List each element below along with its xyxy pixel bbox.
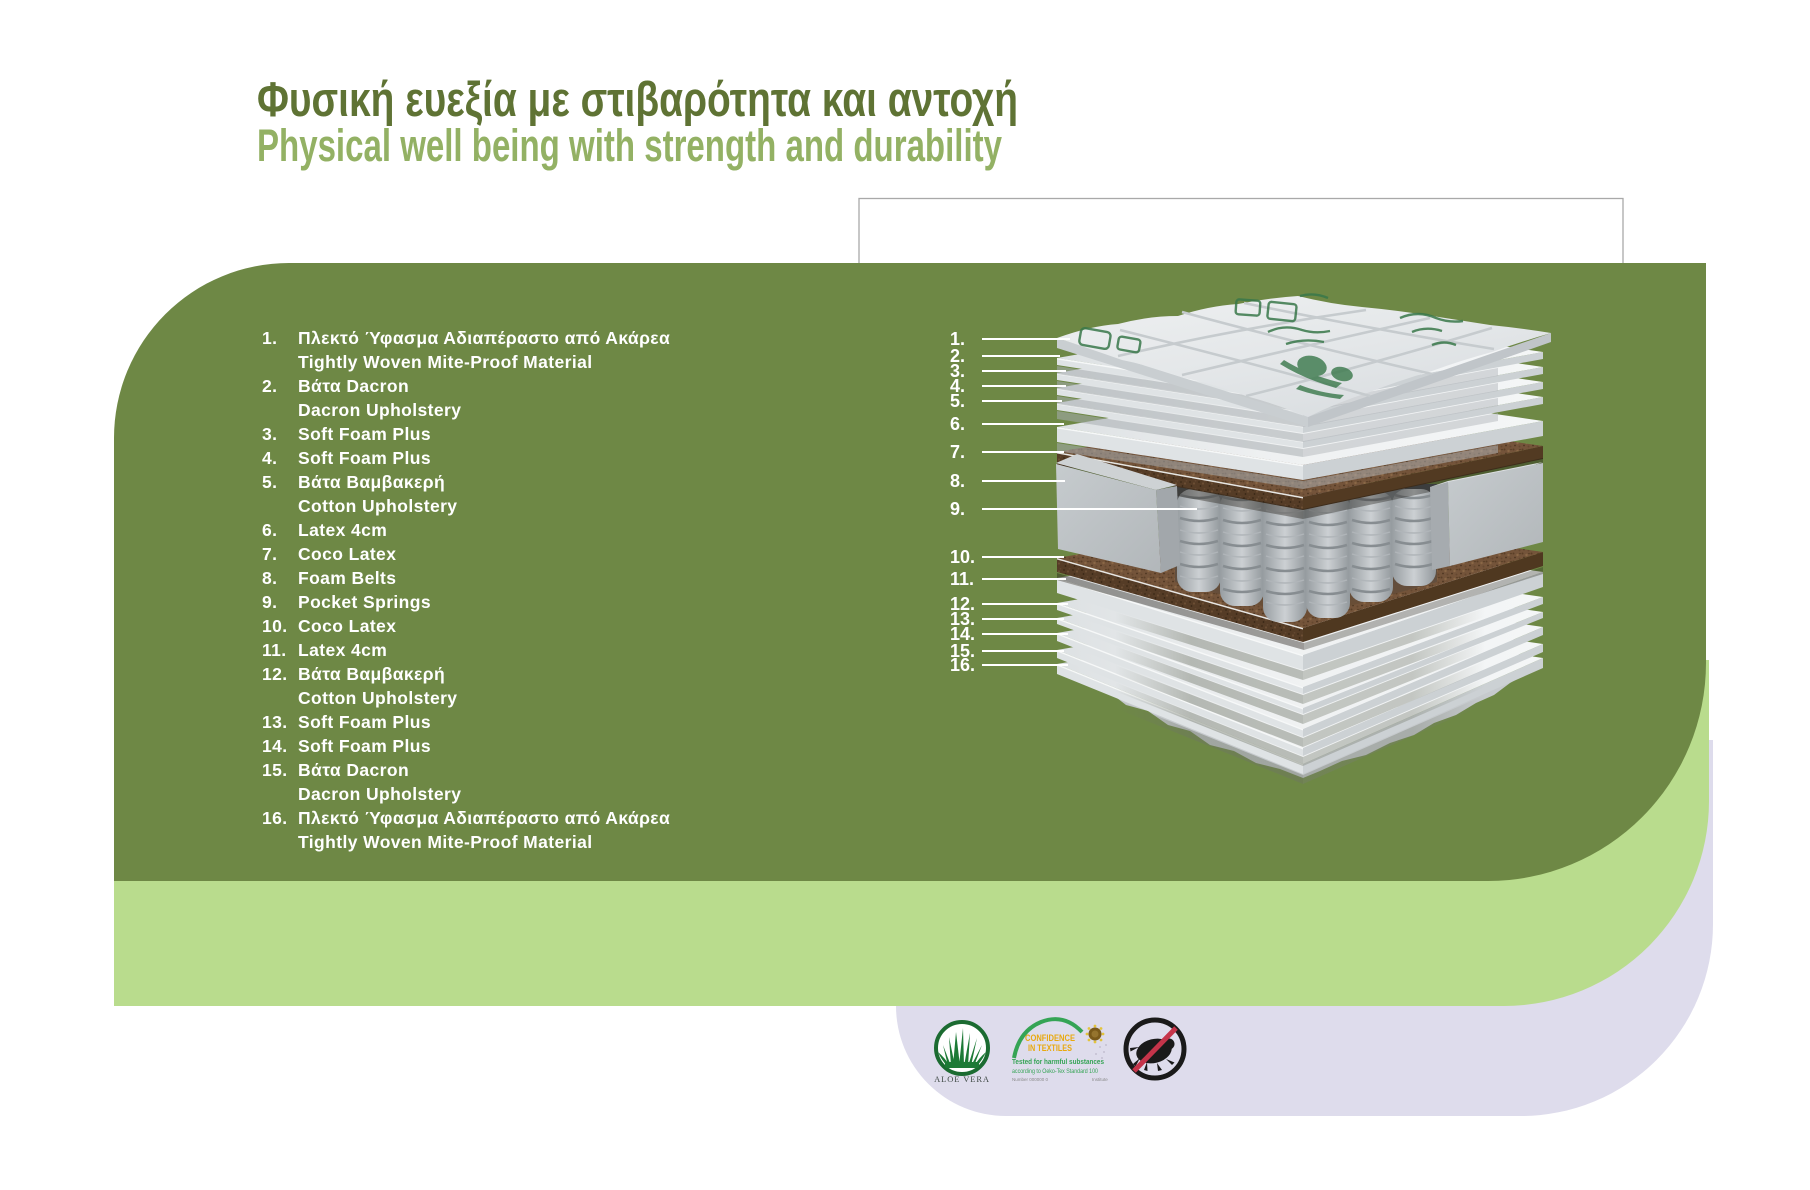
svg-text:11.: 11. bbox=[950, 569, 974, 589]
svg-text:Cotton Upholstery: Cotton Upholstery bbox=[298, 496, 457, 516]
svg-text:Soft Foam Plus: Soft Foam Plus bbox=[298, 448, 431, 468]
svg-text:Latex 4cm: Latex 4cm bbox=[298, 640, 387, 660]
svg-text:Foam Belts: Foam Belts bbox=[298, 568, 396, 588]
svg-text:Φυσική ευεξία με στιβαρότητα κ: Φυσική ευεξία με στιβαρότητα και αντοχή bbox=[257, 73, 1018, 127]
svg-text:8.: 8. bbox=[950, 471, 965, 491]
svg-text:16.: 16. bbox=[950, 655, 975, 675]
svg-text:10.: 10. bbox=[262, 616, 288, 636]
svg-text:5.: 5. bbox=[950, 391, 965, 411]
svg-text:Dacron Upholstery: Dacron Upholstery bbox=[298, 784, 461, 804]
svg-text:Βάτα Βαμβακερή: Βάτα Βαμβακερή bbox=[298, 472, 445, 492]
svg-text:Βάτα Dacron: Βάτα Dacron bbox=[298, 376, 409, 396]
svg-text:Tightly Woven Mite-Proof Mater: Tightly Woven Mite-Proof Material bbox=[298, 832, 593, 852]
svg-text:16.: 16. bbox=[262, 808, 288, 828]
svg-text:9.: 9. bbox=[950, 499, 965, 519]
svg-text:Dacron Upholstery: Dacron Upholstery bbox=[298, 400, 461, 420]
svg-text:14.: 14. bbox=[262, 736, 288, 756]
svg-text:Pocket Springs: Pocket Springs bbox=[298, 592, 431, 612]
svg-text:Institute: Institute bbox=[1092, 1077, 1108, 1082]
svg-text:Latex 4cm: Latex 4cm bbox=[298, 520, 387, 540]
svg-text:15.: 15. bbox=[262, 760, 288, 780]
svg-text:7.: 7. bbox=[950, 442, 965, 462]
svg-text:Πλεκτό Ύφασμα Αδιαπέραστο από: Πλεκτό Ύφασμα Αδιαπέραστο από Ακάρεα bbox=[298, 328, 670, 348]
svg-text:Physical well being with stren: Physical well being with strength and du… bbox=[257, 120, 1002, 171]
svg-text:Soft Foam Plus: Soft Foam Plus bbox=[298, 712, 431, 732]
svg-text:ALOE VERA: ALOE VERA bbox=[934, 1074, 990, 1084]
svg-text:Cotton Upholstery: Cotton Upholstery bbox=[298, 688, 457, 708]
svg-text:Tightly Woven Mite-Proof Mater: Tightly Woven Mite-Proof Material bbox=[298, 352, 593, 372]
svg-text:2.: 2. bbox=[262, 376, 277, 396]
svg-text:Tested for harmful substances: Tested for harmful substances bbox=[1012, 1059, 1104, 1066]
svg-text:Coco Latex: Coco Latex bbox=[298, 544, 396, 564]
svg-text:6.: 6. bbox=[950, 414, 965, 434]
svg-text:according to Oeko-Tex Standard: according to Oeko-Tex Standard 100 bbox=[1012, 1069, 1099, 1075]
svg-text:4.: 4. bbox=[262, 448, 277, 468]
svg-text:Coco Latex: Coco Latex bbox=[298, 616, 396, 636]
svg-text:13.: 13. bbox=[262, 712, 288, 732]
svg-text:7.: 7. bbox=[262, 544, 277, 564]
svg-text:Πλεκτό Ύφασμα Αδιαπέραστο από: Πλεκτό Ύφασμα Αδιαπέραστο από Ακάρεα bbox=[298, 808, 670, 828]
svg-text:5.: 5. bbox=[262, 472, 277, 492]
svg-text:Soft Foam Plus: Soft Foam Plus bbox=[298, 424, 431, 444]
svg-text:Βάτα Βαμβακερή: Βάτα Βαμβακερή bbox=[298, 664, 445, 684]
svg-text:Number 000000 0: Number 000000 0 bbox=[1012, 1077, 1049, 1082]
svg-text:6.: 6. bbox=[262, 520, 277, 540]
svg-text:CONFIDENCE: CONFIDENCE bbox=[1025, 1033, 1075, 1043]
svg-text:11.: 11. bbox=[262, 640, 287, 660]
svg-text:8.: 8. bbox=[262, 568, 277, 588]
svg-text:9.: 9. bbox=[262, 592, 277, 612]
svg-text:1.: 1. bbox=[262, 328, 277, 348]
svg-text:10.: 10. bbox=[950, 547, 975, 567]
svg-text:Βάτα Dacron: Βάτα Dacron bbox=[298, 760, 409, 780]
svg-text:12.: 12. bbox=[262, 664, 288, 684]
svg-text:3.: 3. bbox=[262, 424, 277, 444]
svg-text:Soft Foam Plus: Soft Foam Plus bbox=[298, 736, 431, 756]
svg-text:IN TEXTILES: IN TEXTILES bbox=[1028, 1043, 1072, 1053]
